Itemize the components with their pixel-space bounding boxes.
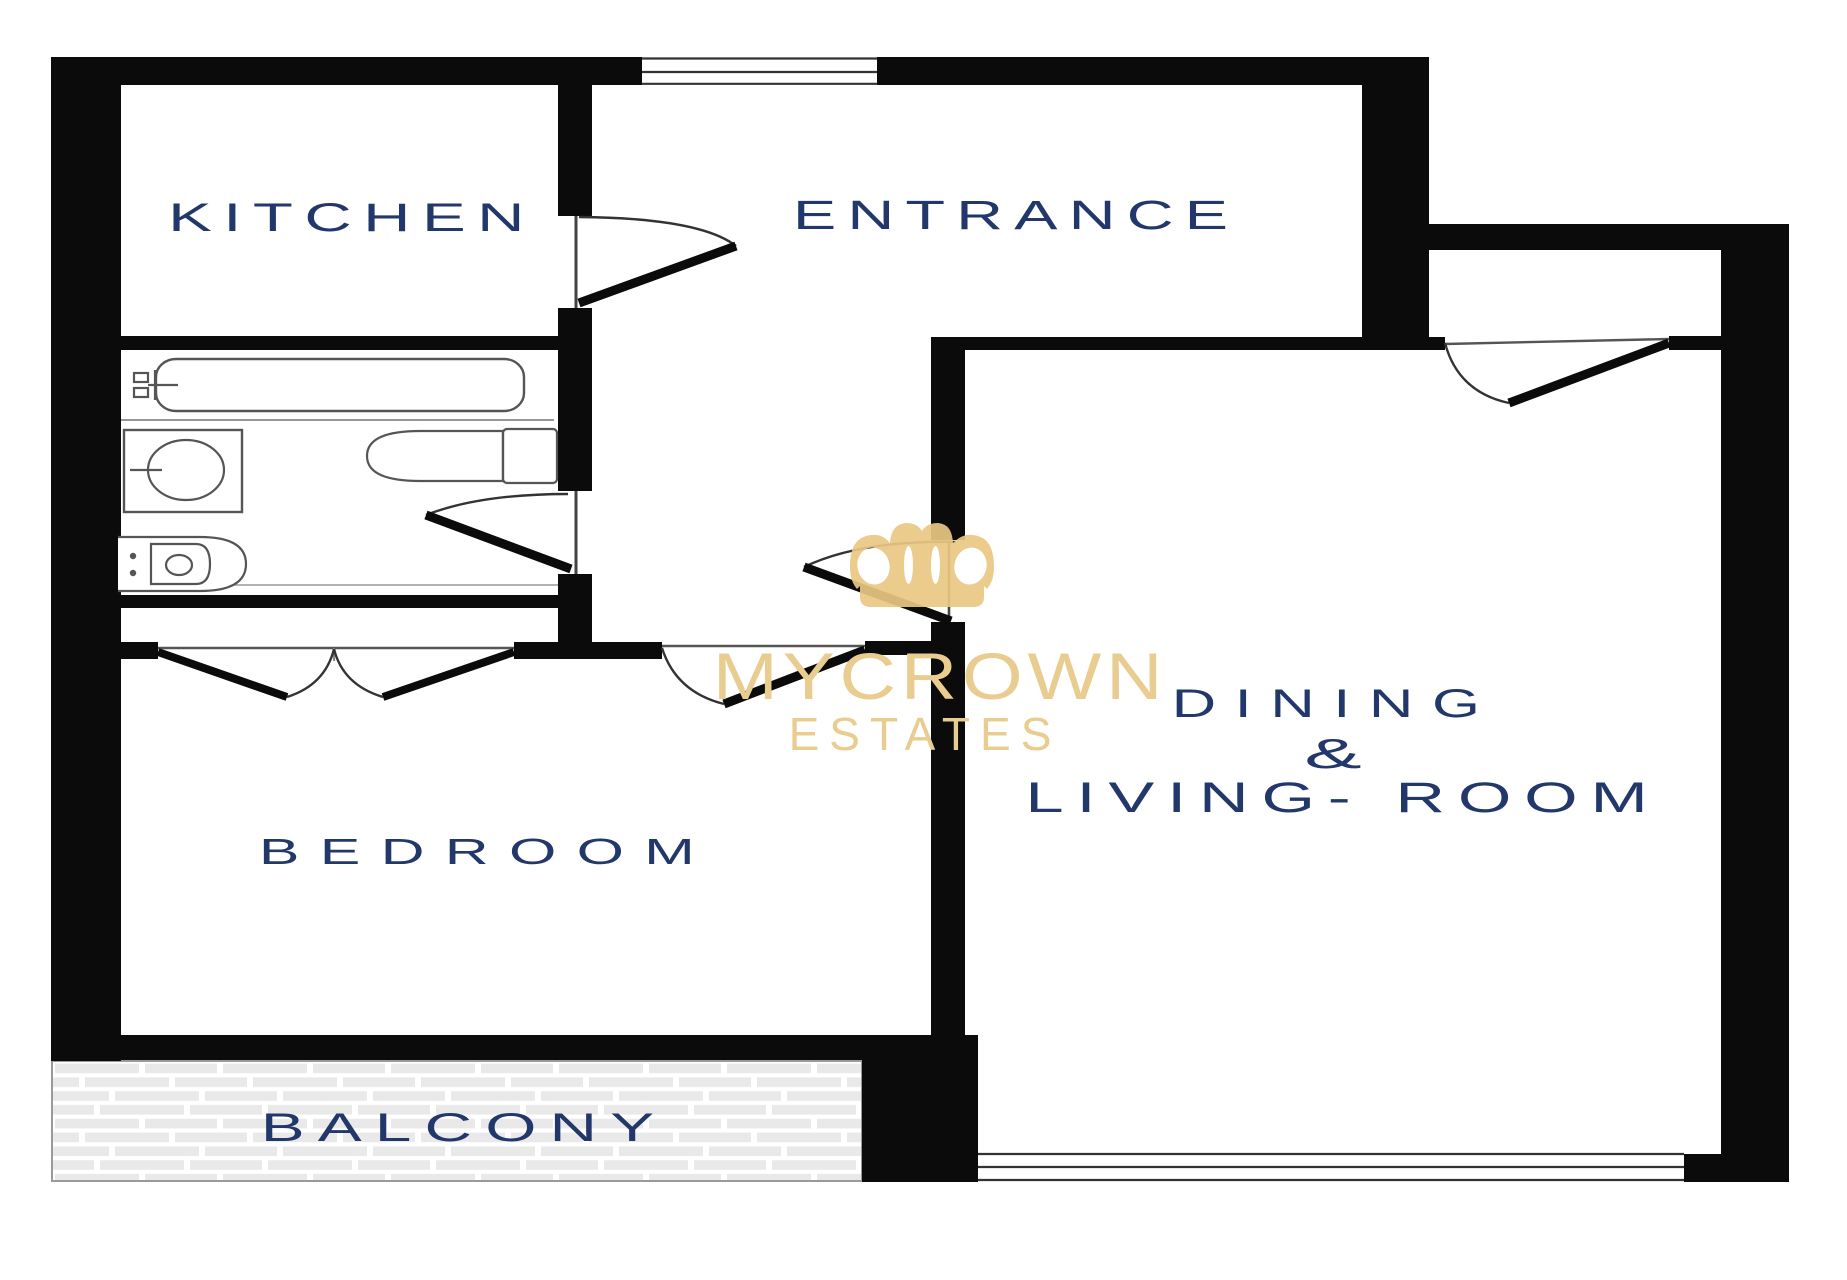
svg-text:ESTATES: ESTATES <box>789 708 1062 760</box>
svg-text:ENTRANCE: ENTRANCE <box>793 192 1239 238</box>
svg-text:&: & <box>1304 731 1361 778</box>
svg-text:DINING: DINING <box>1172 682 1499 727</box>
svg-text:BALCONY: BALCONY <box>261 1105 668 1150</box>
svg-text:LIVING- ROOM: LIVING- ROOM <box>1025 774 1660 822</box>
svg-text:MYCROWN: MYCROWN <box>713 640 1168 714</box>
svg-text:KITCHEN: KITCHEN <box>168 195 536 240</box>
svg-text:BEDROOM: BEDROOM <box>259 832 715 872</box>
